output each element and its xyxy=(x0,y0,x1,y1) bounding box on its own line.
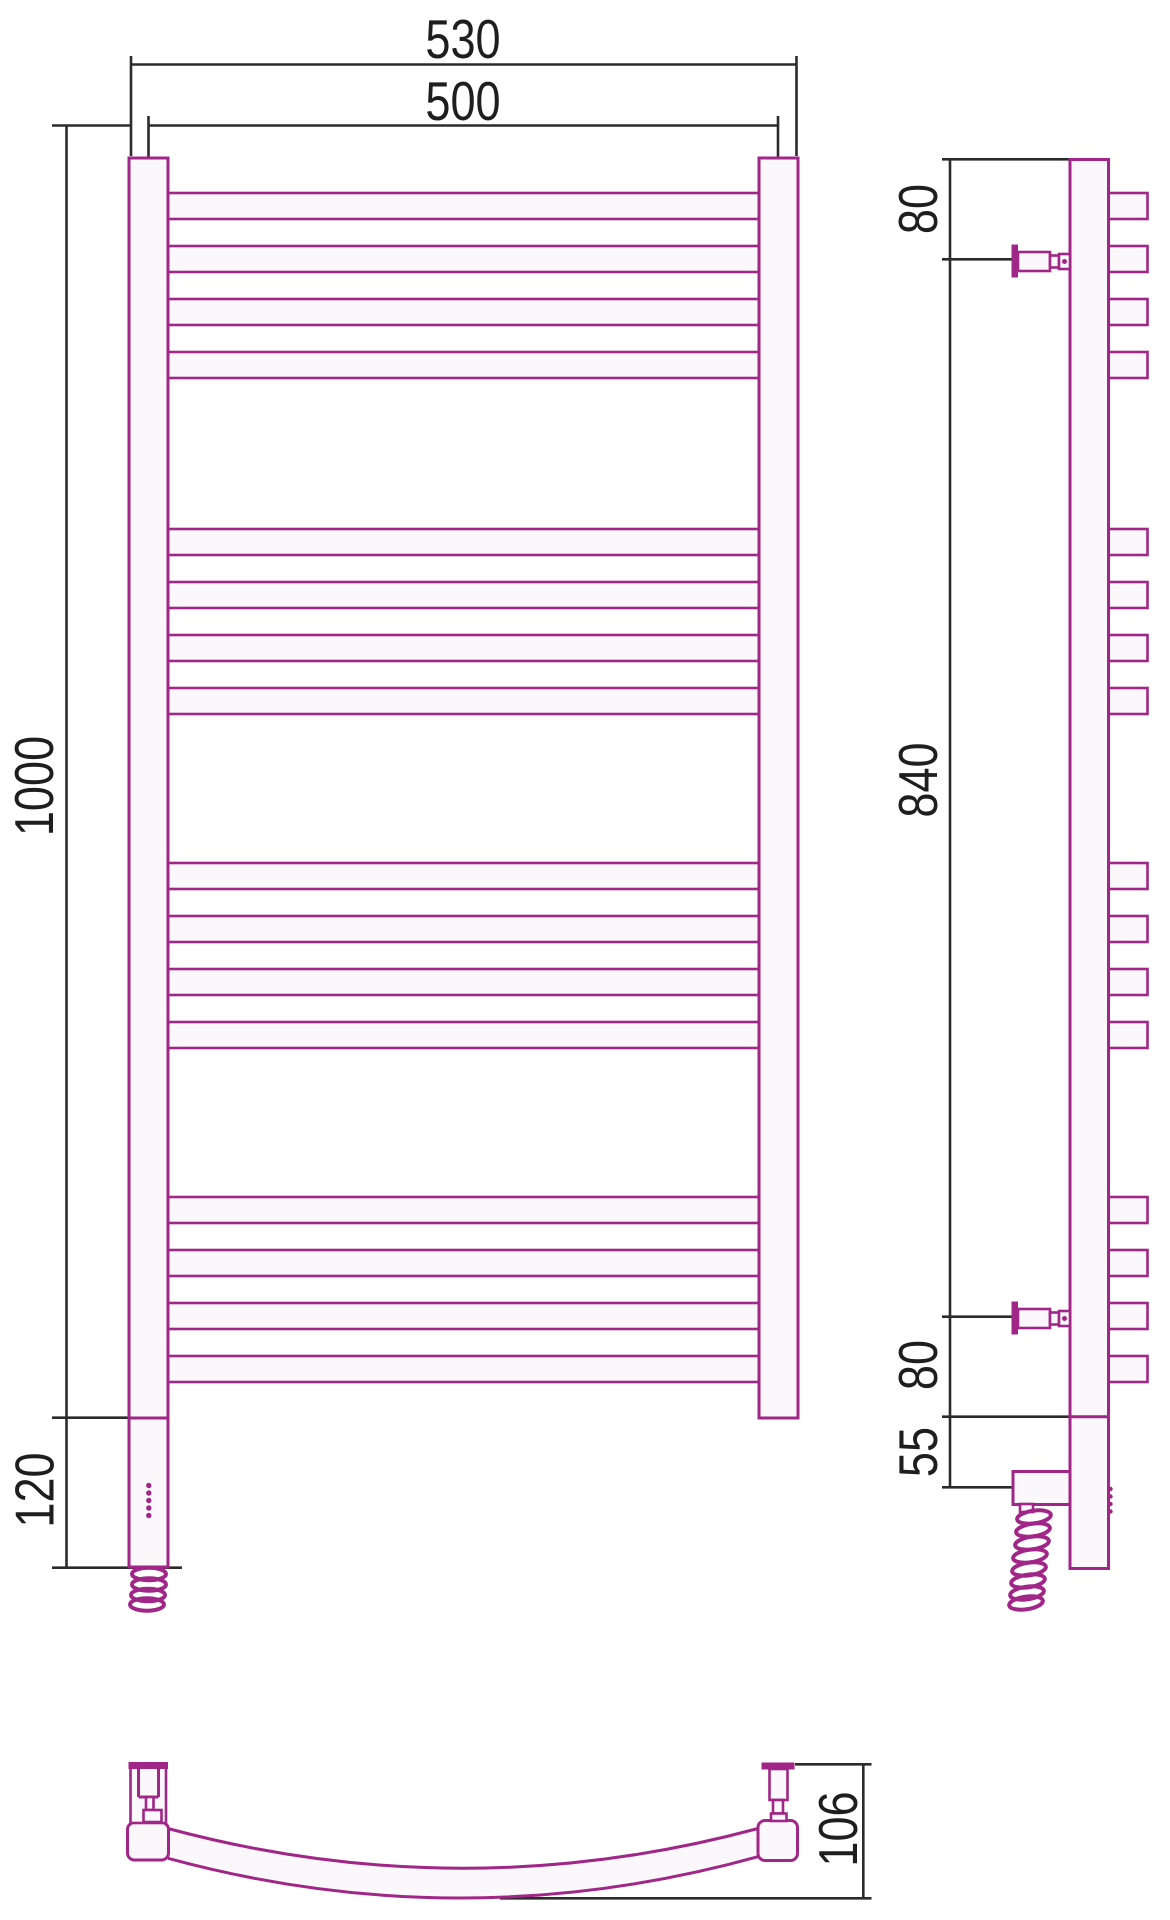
rung-stub xyxy=(1108,193,1148,219)
rung-stub xyxy=(1108,299,1148,325)
front-left-post xyxy=(129,158,168,1567)
rung-stub xyxy=(1108,1250,1148,1276)
rung-tube xyxy=(167,1022,760,1048)
front-power-cable-coil xyxy=(130,1568,166,1611)
rung-tube xyxy=(167,863,760,889)
rung-stub xyxy=(1108,582,1148,608)
side-power-cable-coil xyxy=(1008,1504,1051,1612)
rung-tube xyxy=(167,1250,760,1276)
rung-stub xyxy=(1108,246,1148,272)
rung-stub xyxy=(1108,1022,1148,1048)
dim-front-width-overall: 530 xyxy=(425,8,500,70)
dim-side-element-offset: 55 xyxy=(887,1427,949,1477)
rung-stub xyxy=(1108,1303,1148,1329)
side-dimension-lines xyxy=(942,159,1070,1487)
rung-stub xyxy=(1108,529,1148,555)
upper-wall-bracket xyxy=(1012,245,1071,278)
rung-tube xyxy=(167,246,760,272)
front-rungs xyxy=(167,193,760,1382)
dim-side-top-offset: 80 xyxy=(887,184,949,234)
rung-stub xyxy=(1108,916,1148,942)
rung-tube xyxy=(167,688,760,714)
dim-side-bracket-span: 840 xyxy=(887,742,949,817)
rung-tube xyxy=(167,1197,760,1223)
technical-drawing: 530 500 1000 120 xyxy=(0,0,1170,1920)
rung-stub xyxy=(1108,969,1148,995)
bottom-view: 106 xyxy=(128,1762,872,1898)
bottom-right-block xyxy=(758,1821,798,1861)
rung-tube xyxy=(167,193,760,219)
rung-tube xyxy=(167,529,760,555)
rung-tube xyxy=(167,299,760,325)
bowed-rung-arc xyxy=(168,1829,758,1899)
bottom-left-block xyxy=(128,1823,169,1861)
front-right-post xyxy=(759,158,798,1418)
rung-stub xyxy=(1108,1356,1148,1382)
side-rung-stubs xyxy=(1108,193,1148,1382)
rung-stub xyxy=(1108,1197,1148,1223)
rung-tube xyxy=(167,1303,760,1329)
rung-tube xyxy=(167,635,760,661)
side-post-bar xyxy=(1070,160,1109,1569)
rung-tube xyxy=(167,916,760,942)
dim-front-bottom-section: 120 xyxy=(3,1452,65,1527)
rung-stub xyxy=(1108,635,1148,661)
bottom-right-bracket xyxy=(762,1763,795,1822)
side-view: 80 840 80 55 xyxy=(887,159,1148,1611)
bottom-left-bracket xyxy=(129,1762,169,1823)
rung-stub xyxy=(1108,352,1148,378)
lower-wall-bracket xyxy=(1012,1302,1071,1335)
rung-stub xyxy=(1108,863,1148,889)
dim-bottom-depth: 106 xyxy=(807,1791,869,1866)
page: 530 500 1000 120 xyxy=(0,0,1170,1920)
heating-element-housing xyxy=(1013,1472,1070,1505)
dim-side-bottom-offset: 80 xyxy=(887,1340,949,1390)
dim-front-height: 1000 xyxy=(3,736,65,836)
rung-tube xyxy=(167,582,760,608)
rung-stub xyxy=(1108,688,1148,714)
front-view: 530 500 1000 120 xyxy=(3,8,798,1611)
rung-tube xyxy=(167,969,760,995)
rung-tube xyxy=(167,352,760,378)
rung-tube xyxy=(167,1356,760,1382)
dim-front-width-centers: 500 xyxy=(425,70,500,132)
